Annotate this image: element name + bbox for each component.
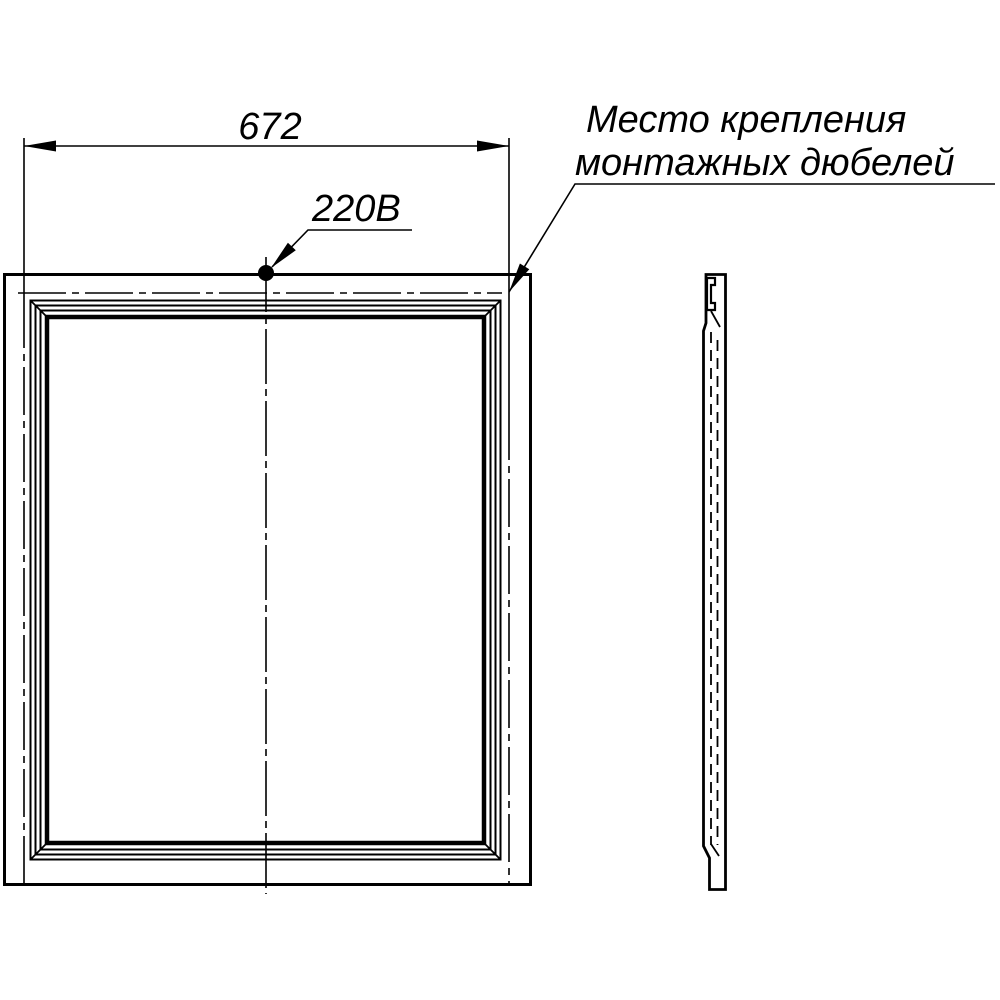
mounting-bracket-profile bbox=[707, 278, 715, 310]
width-dimension-label: 672 bbox=[238, 106, 301, 148]
miter-line-bottom-left bbox=[31, 843, 48, 860]
side-view-outline bbox=[704, 275, 726, 890]
voltage-label: 220В bbox=[311, 188, 401, 230]
outer-panel-rect bbox=[5, 275, 531, 885]
dimension-arrow-left bbox=[24, 141, 56, 152]
front-view: 672 220В Место крепления монтажных дюбел… bbox=[5, 99, 996, 894]
miter-line-bottom-right bbox=[484, 843, 501, 860]
mounting-leader-line bbox=[509, 184, 995, 292]
side-view-top-chamfer bbox=[711, 311, 720, 327]
side-view bbox=[704, 275, 726, 890]
mounting-label-line2: монтажных дюбелей bbox=[575, 142, 955, 184]
side-view-bottom-chamfer bbox=[711, 844, 719, 856]
dimension-arrow-right bbox=[477, 141, 509, 152]
drawing-page: 672 220В Место крепления монтажных дюбел… bbox=[0, 0, 1000, 1000]
technical-drawing: 672 220В Место крепления монтажных дюбел… bbox=[0, 0, 1000, 1000]
mounting-label-line1: Место крепления bbox=[586, 99, 906, 141]
mounting-leader-arrowhead bbox=[509, 264, 529, 293]
miter-line-top-right bbox=[484, 301, 501, 318]
miter-line-top-left bbox=[31, 301, 48, 318]
